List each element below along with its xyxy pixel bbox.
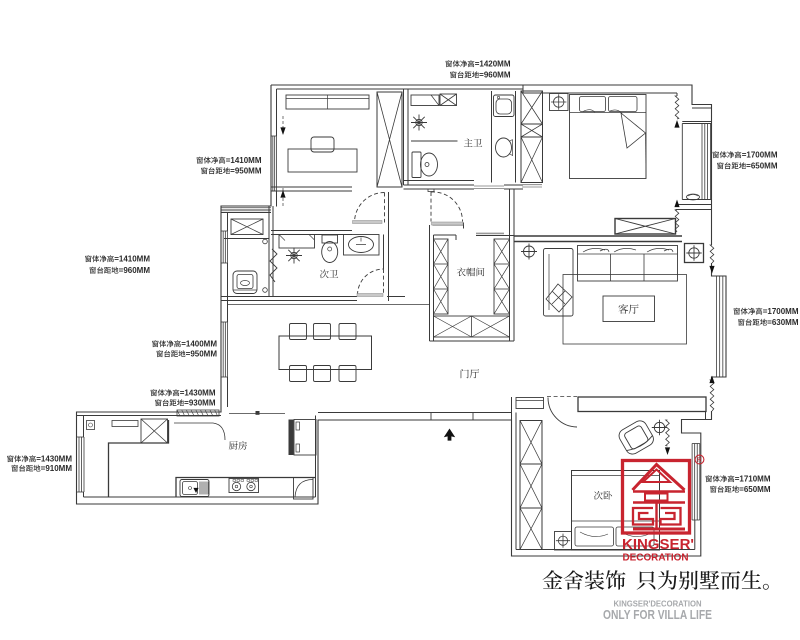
svg-text:=930MM: =930MM [184, 399, 216, 408]
svg-text:=960MM: =960MM [479, 71, 511, 80]
svg-text:=960MM: =960MM [119, 266, 151, 275]
svg-text:=950MM: =950MM [186, 350, 218, 359]
svg-text:=950MM: =950MM [230, 167, 262, 176]
svg-text:R: R [697, 457, 702, 464]
svg-text:KINGSER': KINGSER' [622, 536, 694, 553]
svg-text:=1410MM: =1410MM [226, 156, 262, 165]
svg-text:=1430MM: =1430MM [180, 389, 216, 398]
svg-text:=1700MM: =1700MM [742, 151, 778, 160]
svg-text:=650MM: =650MM [746, 162, 778, 171]
svg-text:=650MM: =650MM [739, 485, 771, 494]
svg-text:ONLY FOR VILLA LIFE: ONLY FOR VILLA LIFE [603, 607, 712, 622]
svg-text:=1410MM: =1410MM [114, 255, 150, 264]
svg-text:=1420MM: =1420MM [475, 60, 511, 69]
svg-text:=1430MM: =1430MM [36, 455, 72, 464]
svg-text:DECORATION: DECORATION [623, 553, 689, 564]
svg-text:=910MM: =910MM [41, 464, 73, 473]
svg-text:=1710MM: =1710MM [735, 475, 771, 484]
svg-text:=1400MM: =1400MM [181, 340, 217, 349]
svg-text:=630MM: =630MM [767, 318, 799, 327]
svg-text:=1700MM: =1700MM [763, 307, 799, 316]
